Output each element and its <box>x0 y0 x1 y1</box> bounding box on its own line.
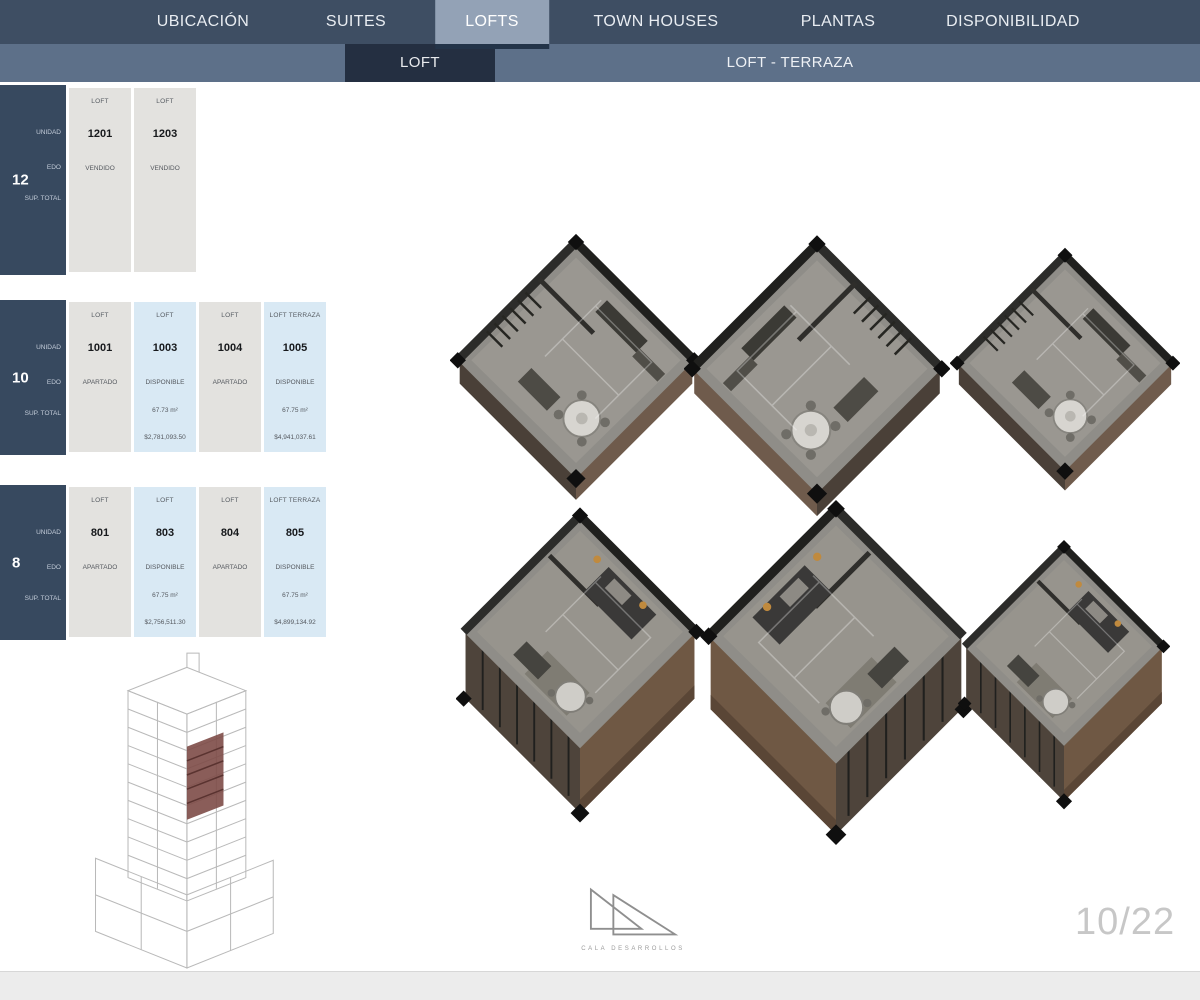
row-label-estado: EDO <box>47 379 61 386</box>
nav-item-disponibilidad[interactable]: DISPONIBILIDAD <box>946 0 1080 44</box>
unit-number: 1203 <box>134 128 196 140</box>
unit-status: DISPONIBLE <box>134 379 196 386</box>
loft-subnav: LOFT LOFT - TERRAZA <box>0 44 1200 82</box>
unit-number: 801 <box>69 527 131 539</box>
unit-area: 67.73 m² <box>134 407 196 414</box>
unit-number: 1005 <box>264 342 326 354</box>
floor-table-10: 10 UNIDAD EDO SUP. TOTAL LOFT 1001 APART… <box>0 300 326 455</box>
unit-area: 67.75 m² <box>264 407 326 414</box>
unit-type: LOFT <box>69 497 131 504</box>
unit-status: APARTADO <box>69 564 131 571</box>
floor-panel-12: 12 UNIDAD EDO SUP. TOTAL <box>0 85 66 275</box>
floor-panel-8: 8 UNIDAD EDO SUP. TOTAL <box>0 485 66 640</box>
unit-card-804[interactable]: LOFT 804 APARTADO <box>199 487 261 637</box>
floor-panel-10: 10 UNIDAD EDO SUP. TOTAL <box>0 300 66 455</box>
unit-card-805[interactable]: LOFT TERRAZA 805 DISPONIBLE 67.75 m² $4,… <box>264 487 326 637</box>
unit-price: $4,899,134.92 <box>264 619 326 626</box>
unit-price: $4,941,037.61 <box>264 434 326 441</box>
unit-card-1003[interactable]: LOFT 1003 DISPONIBLE 67.73 m² $2,781,093… <box>134 302 196 452</box>
unit-number: 1201 <box>69 128 131 140</box>
unit-type: LOFT <box>134 98 196 105</box>
unit-type: LOFT TERRAZA <box>264 497 326 504</box>
unit-type: LOFT <box>199 497 261 504</box>
floorplan-render-3 <box>950 222 1180 522</box>
floor-number: 8 <box>12 554 20 571</box>
nav-item-suites[interactable]: SUITES <box>326 0 386 44</box>
developer-logo: CALA DESARROLLOS <box>553 882 713 952</box>
unit-status: APARTADO <box>199 564 261 571</box>
row-label-estado: EDO <box>47 564 61 571</box>
unit-type: LOFT <box>134 312 196 319</box>
unit-card-1004[interactable]: LOFT 1004 APARTADO <box>199 302 261 452</box>
row-label-unidad: UNIDAD <box>36 129 61 136</box>
unit-type: LOFT <box>69 98 131 105</box>
unit-number: 1001 <box>69 342 131 354</box>
nav-item-town-houses[interactable]: TOWN HOUSES <box>593 0 718 44</box>
unit-number: 805 <box>264 527 326 539</box>
nav-item-lofts[interactable]: LOFTS <box>435 0 549 44</box>
row-label-estado: EDO <box>47 164 61 171</box>
floorplan-render-1 <box>450 224 702 516</box>
unit-type: LOFT <box>134 497 196 504</box>
unit-status: VENDIDO <box>134 165 196 172</box>
row-label-sup-total: SUP. TOTAL <box>25 595 61 602</box>
unit-number: 1004 <box>199 342 261 354</box>
row-label-unidad: UNIDAD <box>36 529 61 536</box>
unit-area: 67.75 m² <box>264 592 326 599</box>
tab-loft[interactable]: LOFT <box>345 44 495 82</box>
nav-item-plantas[interactable]: PLANTAS <box>801 0 876 44</box>
unit-card-1005[interactable]: LOFT TERRAZA 1005 DISPONIBLE 67.75 m² $4… <box>264 302 326 452</box>
unit-status: DISPONIBLE <box>134 564 196 571</box>
building-highlight-floors <box>187 732 224 819</box>
unit-status: DISPONIBLE <box>264 564 326 571</box>
unit-status: DISPONIBLE <box>264 379 326 386</box>
unit-area: 67.75 m² <box>134 592 196 599</box>
row-label-sup-total: SUP. TOTAL <box>25 195 61 202</box>
unit-card-1001[interactable]: LOFT 1001 APARTADO <box>69 302 131 452</box>
unit-status: APARTADO <box>69 379 131 386</box>
unit-status: VENDIDO <box>69 165 131 172</box>
unit-type: LOFT <box>199 312 261 319</box>
floorplan-render-4 <box>456 498 704 842</box>
unit-status: APARTADO <box>199 379 261 386</box>
logo-text: CALA DESARROLLOS <box>553 946 713 952</box>
unit-number: 1003 <box>134 342 196 354</box>
row-label-unidad: UNIDAD <box>36 344 61 351</box>
unit-card-1203[interactable]: LOFT 1203 VENDIDO <box>134 88 196 272</box>
floorplan-render-6 <box>958 498 1170 860</box>
unit-price: $2,756,511.30 <box>134 619 196 626</box>
footer-bar <box>0 971 1200 1000</box>
unit-price: $2,781,093.50 <box>134 434 196 441</box>
floor-table-12: 12 UNIDAD EDO SUP. TOTAL LOFT 1201 VENDI… <box>0 85 196 275</box>
page-indicator: 10/22 <box>1075 901 1175 944</box>
unit-card-801[interactable]: LOFT 801 APARTADO <box>69 487 131 637</box>
unit-type: LOFT <box>69 312 131 319</box>
logo-triangles-icon <box>578 882 688 940</box>
nav-item-ubicacion[interactable]: UBICACIÓN <box>157 0 250 44</box>
unit-type: LOFT TERRAZA <box>264 312 326 319</box>
main-nav: UBICACIÓN SUITES LOFTS TOWN HOUSES PLANT… <box>0 0 1200 44</box>
unit-card-1201[interactable]: LOFT 1201 VENDIDO <box>69 88 131 272</box>
floor-number: 10 <box>12 369 29 386</box>
floor-number: 12 <box>12 172 29 189</box>
unit-card-803[interactable]: LOFT 803 DISPONIBLE 67.75 m² $2,756,511.… <box>134 487 196 637</box>
floor-table-8: 8 UNIDAD EDO SUP. TOTAL LOFT 801 APARTAD… <box>0 485 326 640</box>
unit-number: 803 <box>134 527 196 539</box>
unit-number: 804 <box>199 527 261 539</box>
row-label-sup-total: SUP. TOTAL <box>25 410 61 417</box>
tab-loft-terraza[interactable]: LOFT - TERRAZA <box>495 44 1085 82</box>
floorplan-render-5 <box>700 490 972 866</box>
building-location-illustration <box>62 645 322 970</box>
